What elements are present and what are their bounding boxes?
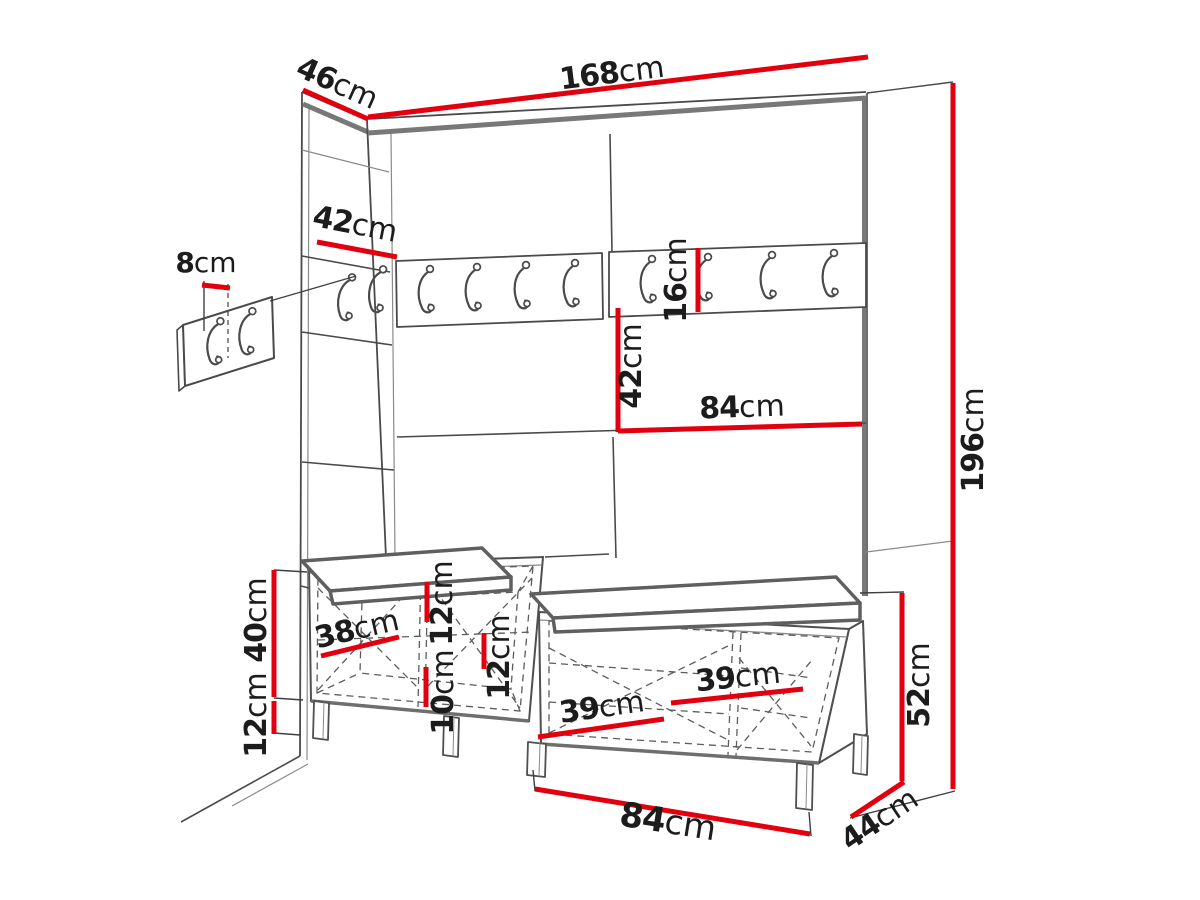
dim-line-84-bottom [535, 789, 810, 834]
return-wall-panel [181, 92, 395, 822]
detail-leader-line [270, 276, 356, 301]
main-wall-panel [367, 82, 953, 596]
dim-line-46 [303, 90, 368, 119]
dim-line-84-wall [618, 424, 862, 431]
coat-hook-icon [336, 265, 387, 321]
dim-line-44 [851, 782, 904, 817]
bench-right-cushion [531, 577, 860, 632]
hook-detail-panel [177, 276, 356, 391]
dim-line-168 [368, 57, 868, 117]
bench-right [527, 577, 868, 810]
furniture-dimension-diagram: 46cm 168cm 42cm 8cm 16cm 42cm 84cm 196cm… [0, 0, 1200, 900]
dim-line-42-return [317, 242, 397, 257]
hook-rail [396, 243, 866, 327]
dim-line-8 [202, 285, 230, 288]
diagram-canvas [0, 0, 1200, 900]
